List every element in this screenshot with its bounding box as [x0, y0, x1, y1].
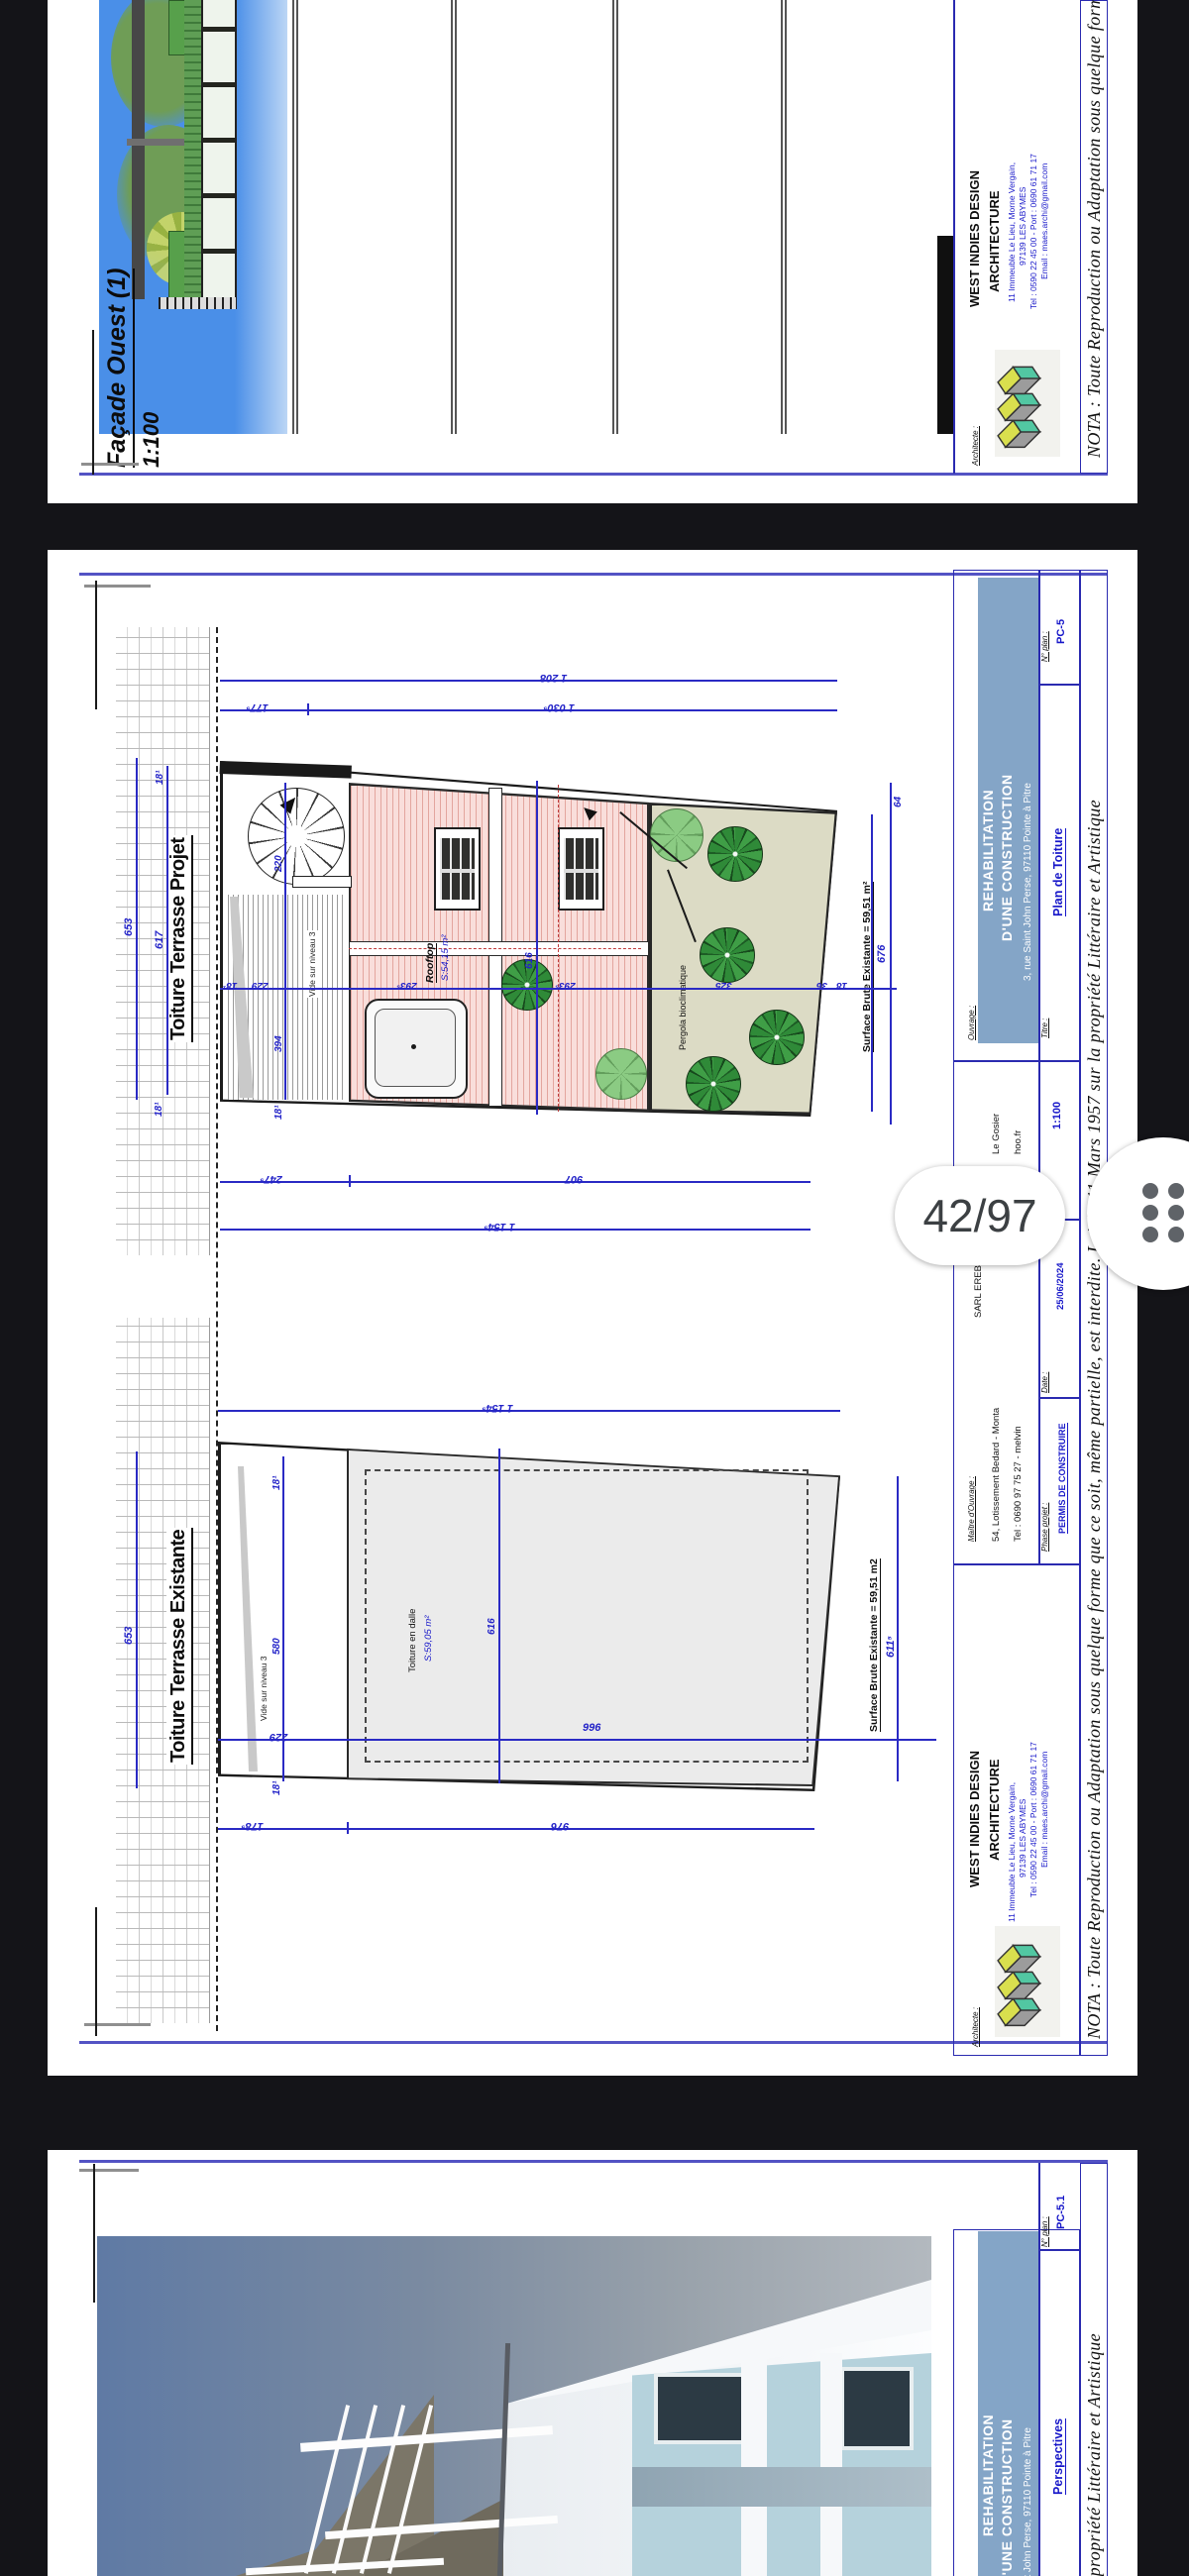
architect-label: Architecte : [971, 426, 980, 466]
client-phone-end: hoo.fr [1013, 1130, 1024, 1154]
skylight-glazing [440, 838, 475, 900]
dim-line [897, 1476, 899, 1781]
page-plan-de-toiture[interactable]: Toiture Terrasse Projet Vide sur niveau … [48, 550, 1137, 2076]
architect-address4: Email : maes.archi@gmail.com [1039, 163, 1049, 279]
dalle-label: Toiture en dalle [407, 1609, 418, 1672]
dim-label: 18 [836, 980, 847, 991]
dim-line [220, 1229, 811, 1231]
rooftop-label: Rooftop [424, 943, 437, 983]
dim-line [220, 709, 837, 711]
dim-label: 229 [270, 1731, 287, 1743]
render-window [654, 2373, 747, 2444]
dim-line [871, 814, 873, 1112]
sheet-frame [79, 2160, 1108, 2163]
render-window [840, 2367, 914, 2450]
perspective-render [97, 2236, 931, 2576]
tree-icon [749, 1010, 805, 1065]
tree-icon [650, 808, 703, 862]
stair-landing [292, 876, 352, 888]
titleblock-divider [953, 1060, 1080, 1062]
client-address: 54, Lotissement Bedard - Monta [991, 1408, 1002, 1542]
west-indies-w-logo [995, 1926, 1060, 2037]
pdf-viewer-canvas: Façade Ouest (1) 1:100 WEST INDIES DESIG… [0, 0, 1189, 2576]
grid-dots-icon [1168, 1227, 1184, 1242]
slab-line [785, 0, 787, 434]
dim-line [284, 783, 286, 1100]
dim-label: 325 [715, 980, 732, 991]
dim-label: 220 [273, 855, 284, 872]
grid-dots-icon [1168, 1183, 1184, 1199]
nota-text: NOTA : Toute Reproduction ou Adaptation … [1084, 2333, 1105, 2576]
titleblock-divider [1038, 684, 1080, 686]
titre-label: Titre : [1040, 1019, 1049, 1038]
dim-label: 293⁵ [555, 980, 576, 991]
dim-label: 616 [524, 952, 535, 969]
west-indies-w-logo [995, 350, 1060, 457]
dim-line [220, 680, 837, 682]
page-facade-ouest[interactable]: Façade Ouest (1) 1:100 WEST INDIES DESIG… [48, 0, 1137, 503]
architect-address1: 11 Immeuble Le Lieu, Morne Vergain, [1007, 1782, 1017, 1922]
scale-value: 1:100 [1052, 1102, 1063, 1129]
architect-address1: 11 Immeuble Le Lieu, Morne Vergain, [1007, 162, 1017, 302]
dim-line [890, 783, 892, 1125]
axis-line [349, 948, 641, 949]
dim-tick [307, 703, 309, 715]
vide-label: Vide sur niveau 3 [259, 1656, 269, 1721]
corner-tick [81, 463, 139, 466]
dim-label: 653 [123, 1627, 135, 1645]
page-indicator-pill[interactable]: 42/97 [895, 1166, 1065, 1265]
rooftop-area-label: S:54,15 m² [440, 935, 451, 981]
dim-tick [347, 1822, 349, 1834]
titleblock-divider [1038, 1397, 1080, 1399]
corner-tick [93, 2164, 95, 2303]
dim-label: 18¹ [273, 1106, 284, 1120]
dim-label: 611⁵ [885, 1636, 897, 1658]
grid-dots-icon [1142, 1227, 1158, 1242]
sheet-titre: Plan de Toiture [1052, 828, 1066, 916]
dim-line [498, 1449, 500, 1783]
ouvrage-line3: 3, rue Saint John Perse, 97110 Pointe à … [1023, 783, 1033, 981]
client-label: Maître d'Ouvrage : [967, 1476, 976, 1542]
ouvrage-line3: 3, rue Saint John Perse, 97110 Pointe à … [1023, 2427, 1033, 2576]
jacuzzi-drain [411, 1044, 416, 1049]
dim-label: 18¹ [154, 1103, 164, 1117]
architect-name: WEST INDIES DESIGN [967, 170, 982, 307]
dim-label: 247⁵ [260, 1173, 282, 1185]
dim-label: 18¹ [271, 1476, 282, 1490]
facade-beam [127, 139, 188, 146]
dim-label: 996 [583, 1722, 600, 1734]
dim-line [218, 1410, 840, 1412]
facade-louvers [184, 0, 201, 307]
dim-line [218, 1828, 814, 1830]
facade-column [132, 0, 145, 299]
client-address-end: Le Gosier [991, 1114, 1002, 1154]
titleblock-divider [953, 1563, 1080, 1565]
titleblock-divider [1038, 570, 1040, 1563]
architect-label: Architecte : [971, 2007, 980, 2047]
corner-tick [95, 581, 97, 709]
dim-label: 64 [893, 797, 904, 807]
titleblock-divider [1038, 2249, 1080, 2251]
dim-label: 976 [551, 1820, 569, 1832]
slab-line [616, 0, 618, 434]
slab-line [296, 0, 298, 434]
skylight-glazing [564, 838, 598, 900]
dim-tick [349, 1175, 351, 1187]
nota-text: NOTA : Toute Reproduction ou Adaptation … [1084, 0, 1105, 458]
grid-dots-icon [1168, 1205, 1184, 1221]
ouvrage-line1: REHABILITATION [980, 790, 996, 912]
dim-label: 18¹ [155, 771, 165, 785]
ouvrage-line1: REHABILITATION [980, 2415, 996, 2536]
facade-base [159, 297, 236, 309]
pergola-label: Pergola bioclimatique [678, 965, 688, 1050]
phase-value: PERMIS DE CONSTRUIRE [1058, 1423, 1068, 1534]
architect-name2: ARCHITECTURE [987, 1759, 1002, 1861]
page-perspectives[interactable]: REHABILITATION D'UNE CONSTRUCTION 3, rue… [48, 2150, 1137, 2576]
dim-label: 617 [154, 931, 165, 949]
corner-tick [95, 1907, 97, 2036]
ouvrage-label: Ouvrage : [967, 1006, 976, 1040]
dim-label: 18¹ [223, 980, 237, 991]
tree-icon [686, 1056, 741, 1112]
render-pillar [741, 2353, 767, 2576]
slab-line [455, 0, 457, 434]
dim-label: 907 [565, 1173, 583, 1185]
slab-line [612, 0, 614, 434]
axis-line [558, 785, 559, 1112]
dim-line [220, 1181, 811, 1183]
date-label: Date : [1040, 1372, 1049, 1393]
dim-label: 36 [816, 980, 827, 991]
dim-label: 18¹ [271, 1781, 282, 1795]
page-indicator-text: 42/97 [922, 1189, 1036, 1242]
tree-icon [700, 927, 755, 983]
ouvrage-line2: D'UNE CONSTRUCTION [999, 774, 1015, 941]
dim-line [218, 1739, 936, 1741]
ground-line [937, 236, 953, 434]
dim-line [136, 1451, 138, 1788]
date-value: 25/06/2024 [1056, 1262, 1066, 1310]
dim-line [136, 758, 138, 1100]
dim-label: 178⁵ [241, 1820, 264, 1832]
nplan-label: N° plan : [1040, 631, 1049, 662]
plan-title-existante: Toiture Terrasse Existante [166, 1528, 193, 1765]
tree-icon [595, 1048, 647, 1100]
architect-address2: 97139 LES ABYMES [1018, 187, 1027, 266]
slab-line [781, 0, 783, 434]
grid-dots-icon [1142, 1183, 1158, 1199]
dalle-area-label: S:59,05 m² [423, 1616, 434, 1662]
slab-line [292, 0, 294, 434]
dim-label: 653 [123, 918, 135, 936]
client-phone: Tel : 0690 97 75 27 - melvin [1013, 1426, 1024, 1542]
facade-drawing-scale: 1:100 [139, 412, 164, 468]
plan-title-projet: Toiture Terrasse Projet [166, 836, 193, 1043]
phase-label: Phase projet : [1040, 1503, 1049, 1552]
sheet-number: PC-5.1 [1056, 2196, 1067, 2229]
slab-line [451, 0, 453, 434]
ouvrage-line2: D'UNE CONSTRUCTION [999, 2418, 1015, 2576]
architect-address3: Tel : 0590 22 45 00 - Port : 0690 61 71 … [1028, 1742, 1038, 1897]
dim-label: 1 154⁵ [484, 1221, 515, 1233]
dim-line [536, 781, 538, 1115]
grid-dots-icon [1142, 1205, 1158, 1221]
client-name: SARL EREBE [973, 1259, 984, 1318]
dim-line [166, 766, 168, 1095]
facade-glass [201, 0, 237, 309]
architect-name2: ARCHITECTURE [987, 190, 1002, 292]
corner-tick [79, 2169, 139, 2172]
dim-label: 229 [252, 980, 269, 991]
dim-label: 177⁵ [246, 701, 269, 713]
dim-label: 616 [486, 1618, 497, 1635]
property-line [216, 627, 218, 2031]
dim-label: 293⁵ [396, 980, 417, 991]
sheet-titre: Perspectives [1052, 2418, 1066, 2495]
titleblock-border [953, 0, 955, 474]
dim-label: 394 [273, 1035, 284, 1052]
render-window-band [632, 2467, 931, 2507]
surface-note-existante: Surface Brute Existante = 59,51 m2 [868, 1558, 881, 1732]
facade-drawing-title: Façade Ouest (1) [103, 268, 135, 468]
dim-label: 676 [876, 945, 888, 963]
architect-name: WEST INDIES DESIGN [967, 1751, 982, 1887]
dim-label: 580 [271, 1638, 282, 1655]
dim-label: 1 154⁵ [482, 1402, 513, 1414]
nplan-label: N° plan : [1040, 2216, 1049, 2247]
nota-text: NOTA : Toute Reproduction ou Adaptation … [1084, 800, 1105, 2039]
render-pillar [820, 2353, 842, 2576]
sheet-number: PC-5 [1056, 619, 1067, 644]
corner-tick [92, 330, 94, 475]
dim-label: 1 208 [540, 672, 568, 684]
architect-address2: 97139 LES ABYMES [1018, 1799, 1027, 1878]
architect-address3: Tel : 0590 22 45 00 - Port : 0690 61 71 … [1028, 154, 1038, 309]
dim-line [282, 1456, 284, 1781]
tree-icon [707, 826, 763, 882]
brick-hatch-wall [116, 1318, 210, 2023]
architect-address4: Email : maes.archi@gmail.com [1039, 1752, 1049, 1868]
dim-label: 1 030⁵ [543, 701, 575, 713]
